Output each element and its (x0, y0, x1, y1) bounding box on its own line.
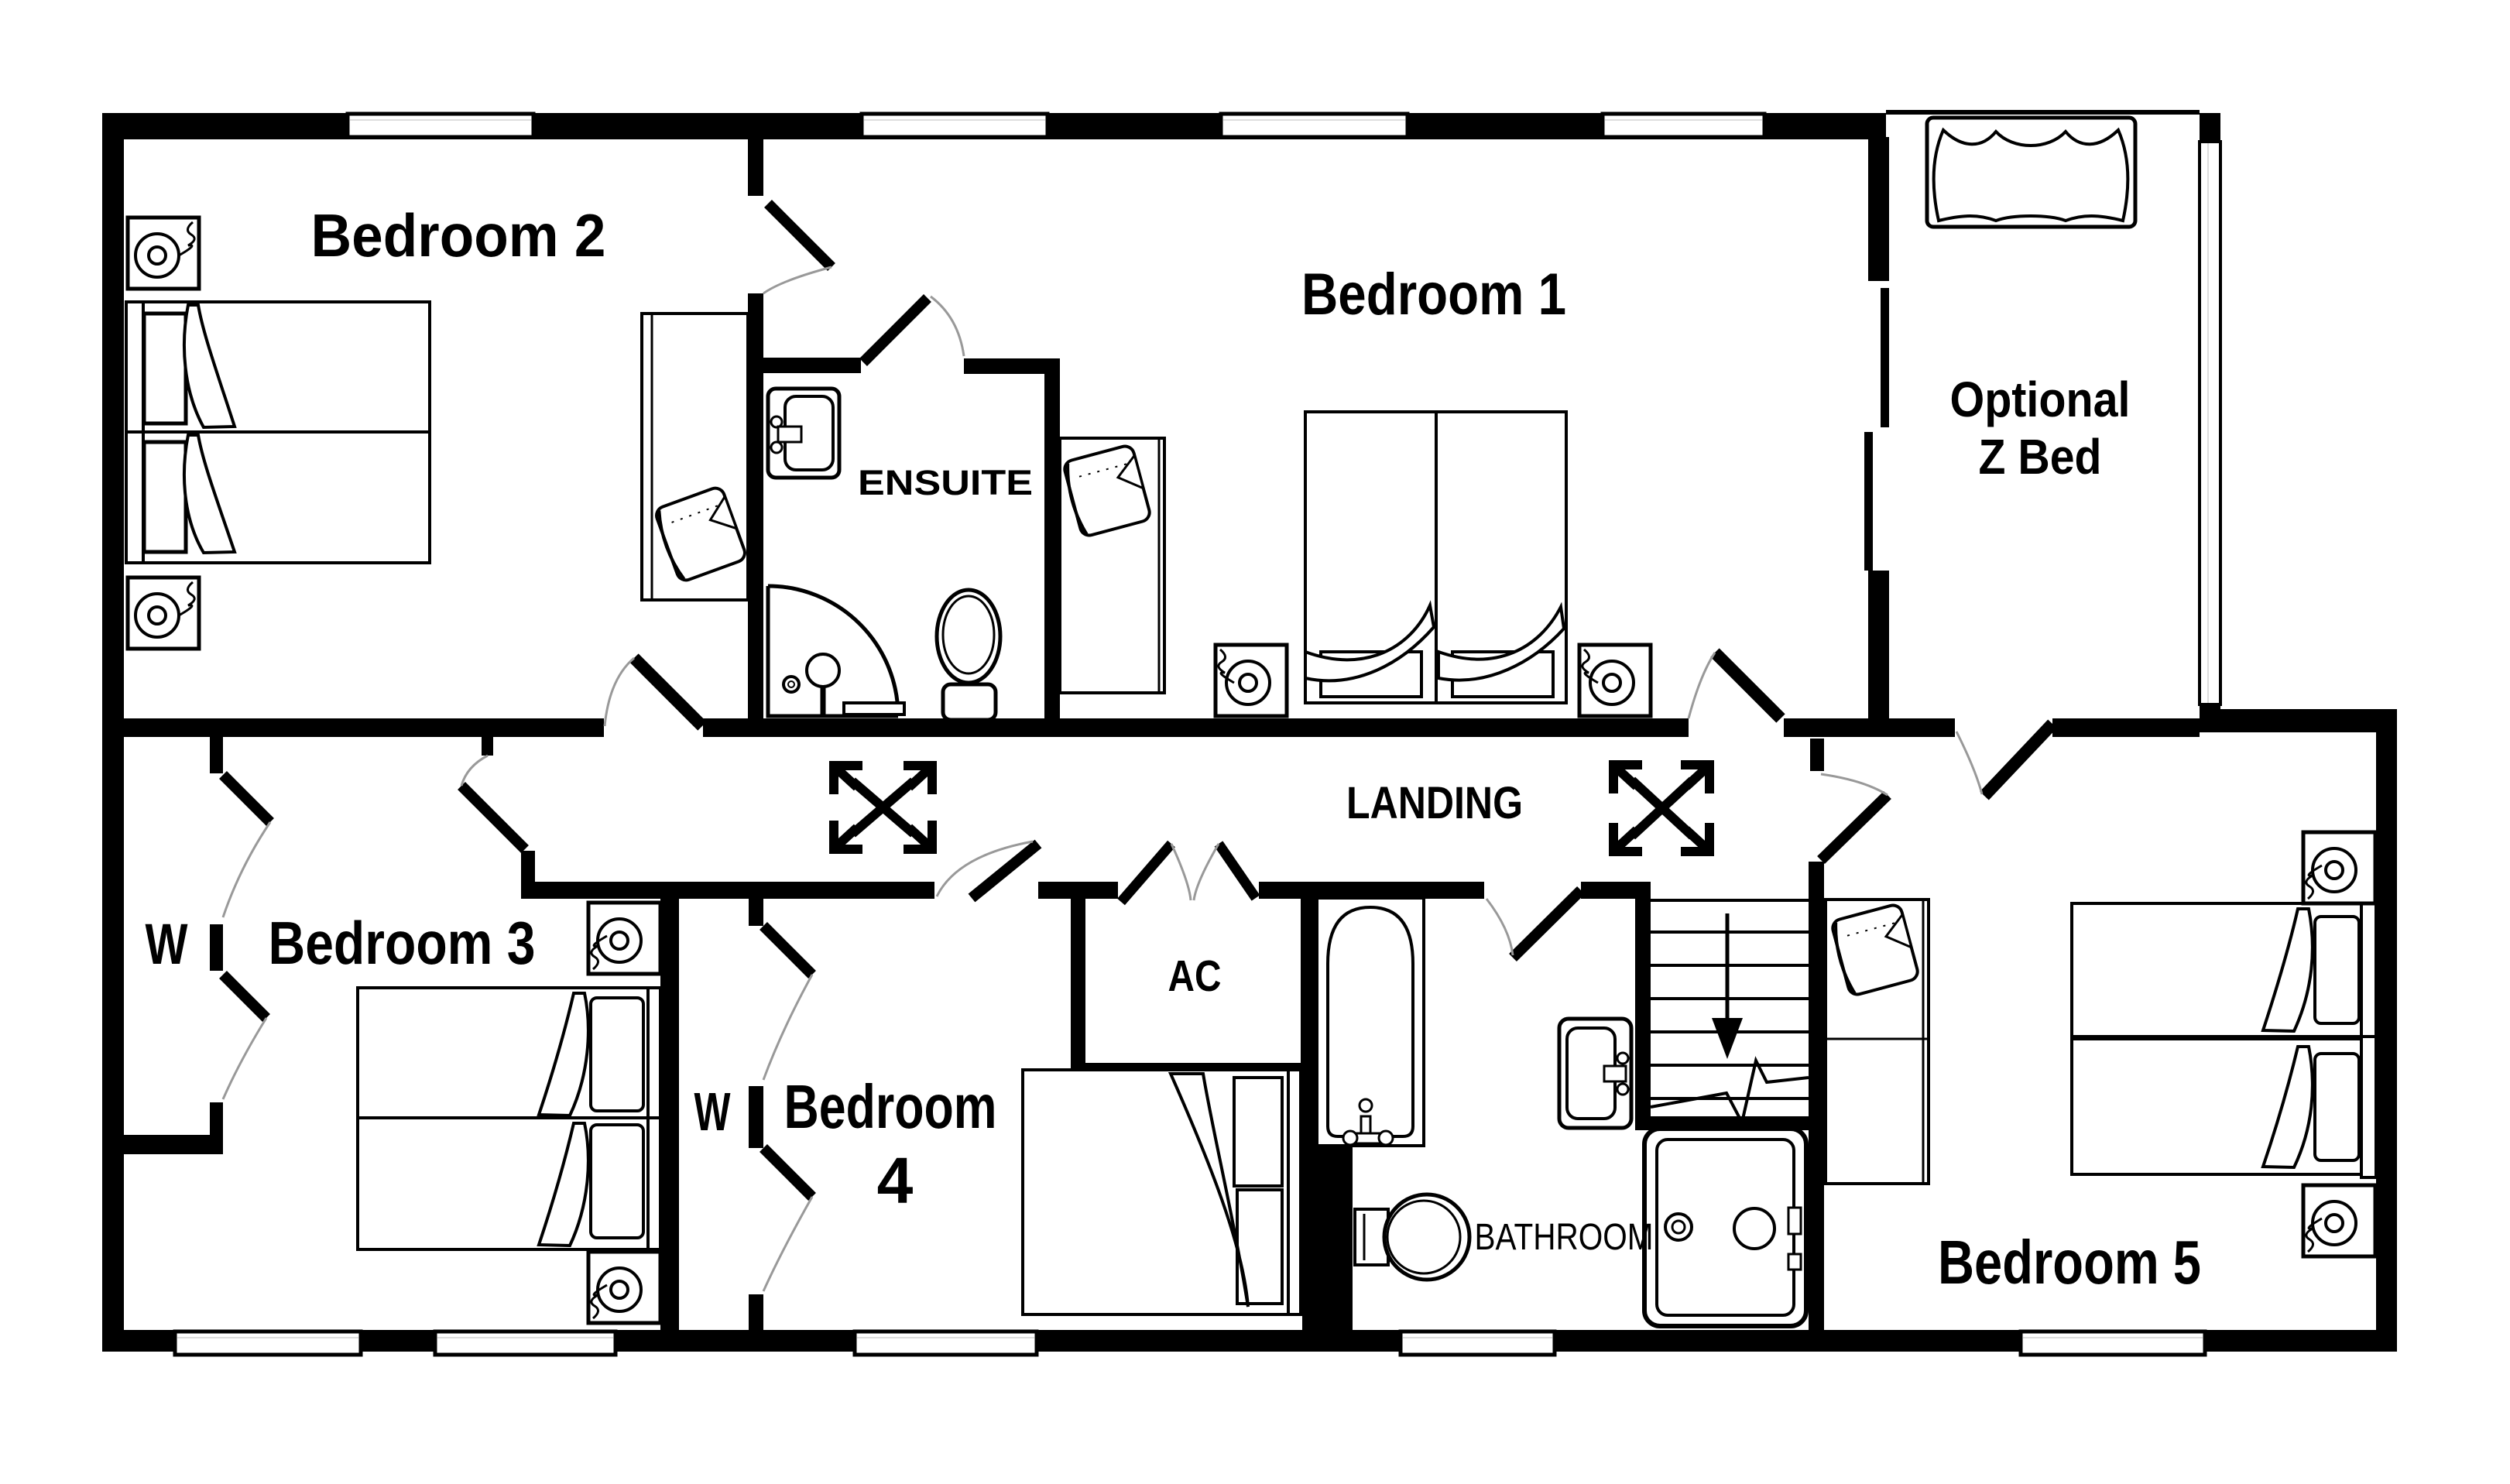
svg-text:W: W (694, 1081, 731, 1142)
svg-text:Bedroom: Bedroom (784, 1072, 997, 1141)
svg-text:Bedroom 3: Bedroom 3 (269, 909, 536, 977)
svg-text:Optional: Optional (1950, 372, 2131, 427)
svg-text:Bedroom 5: Bedroom 5 (1938, 1228, 2201, 1297)
svg-text:Z Bed: Z Bed (1979, 429, 2102, 485)
svg-text:LANDING: LANDING (1346, 778, 1523, 828)
svg-text:ENSUITE: ENSUITE (858, 463, 1033, 502)
svg-text:4: 4 (877, 1144, 914, 1217)
svg-text:W: W (146, 912, 188, 976)
svg-text:Bedroom 1: Bedroom 1 (1301, 262, 1566, 327)
svg-text:AC: AC (1168, 951, 1222, 1001)
svg-text:BATHROOM: BATHROOM (1475, 1217, 1654, 1258)
svg-text:Bedroom 2: Bedroom 2 (311, 201, 606, 269)
